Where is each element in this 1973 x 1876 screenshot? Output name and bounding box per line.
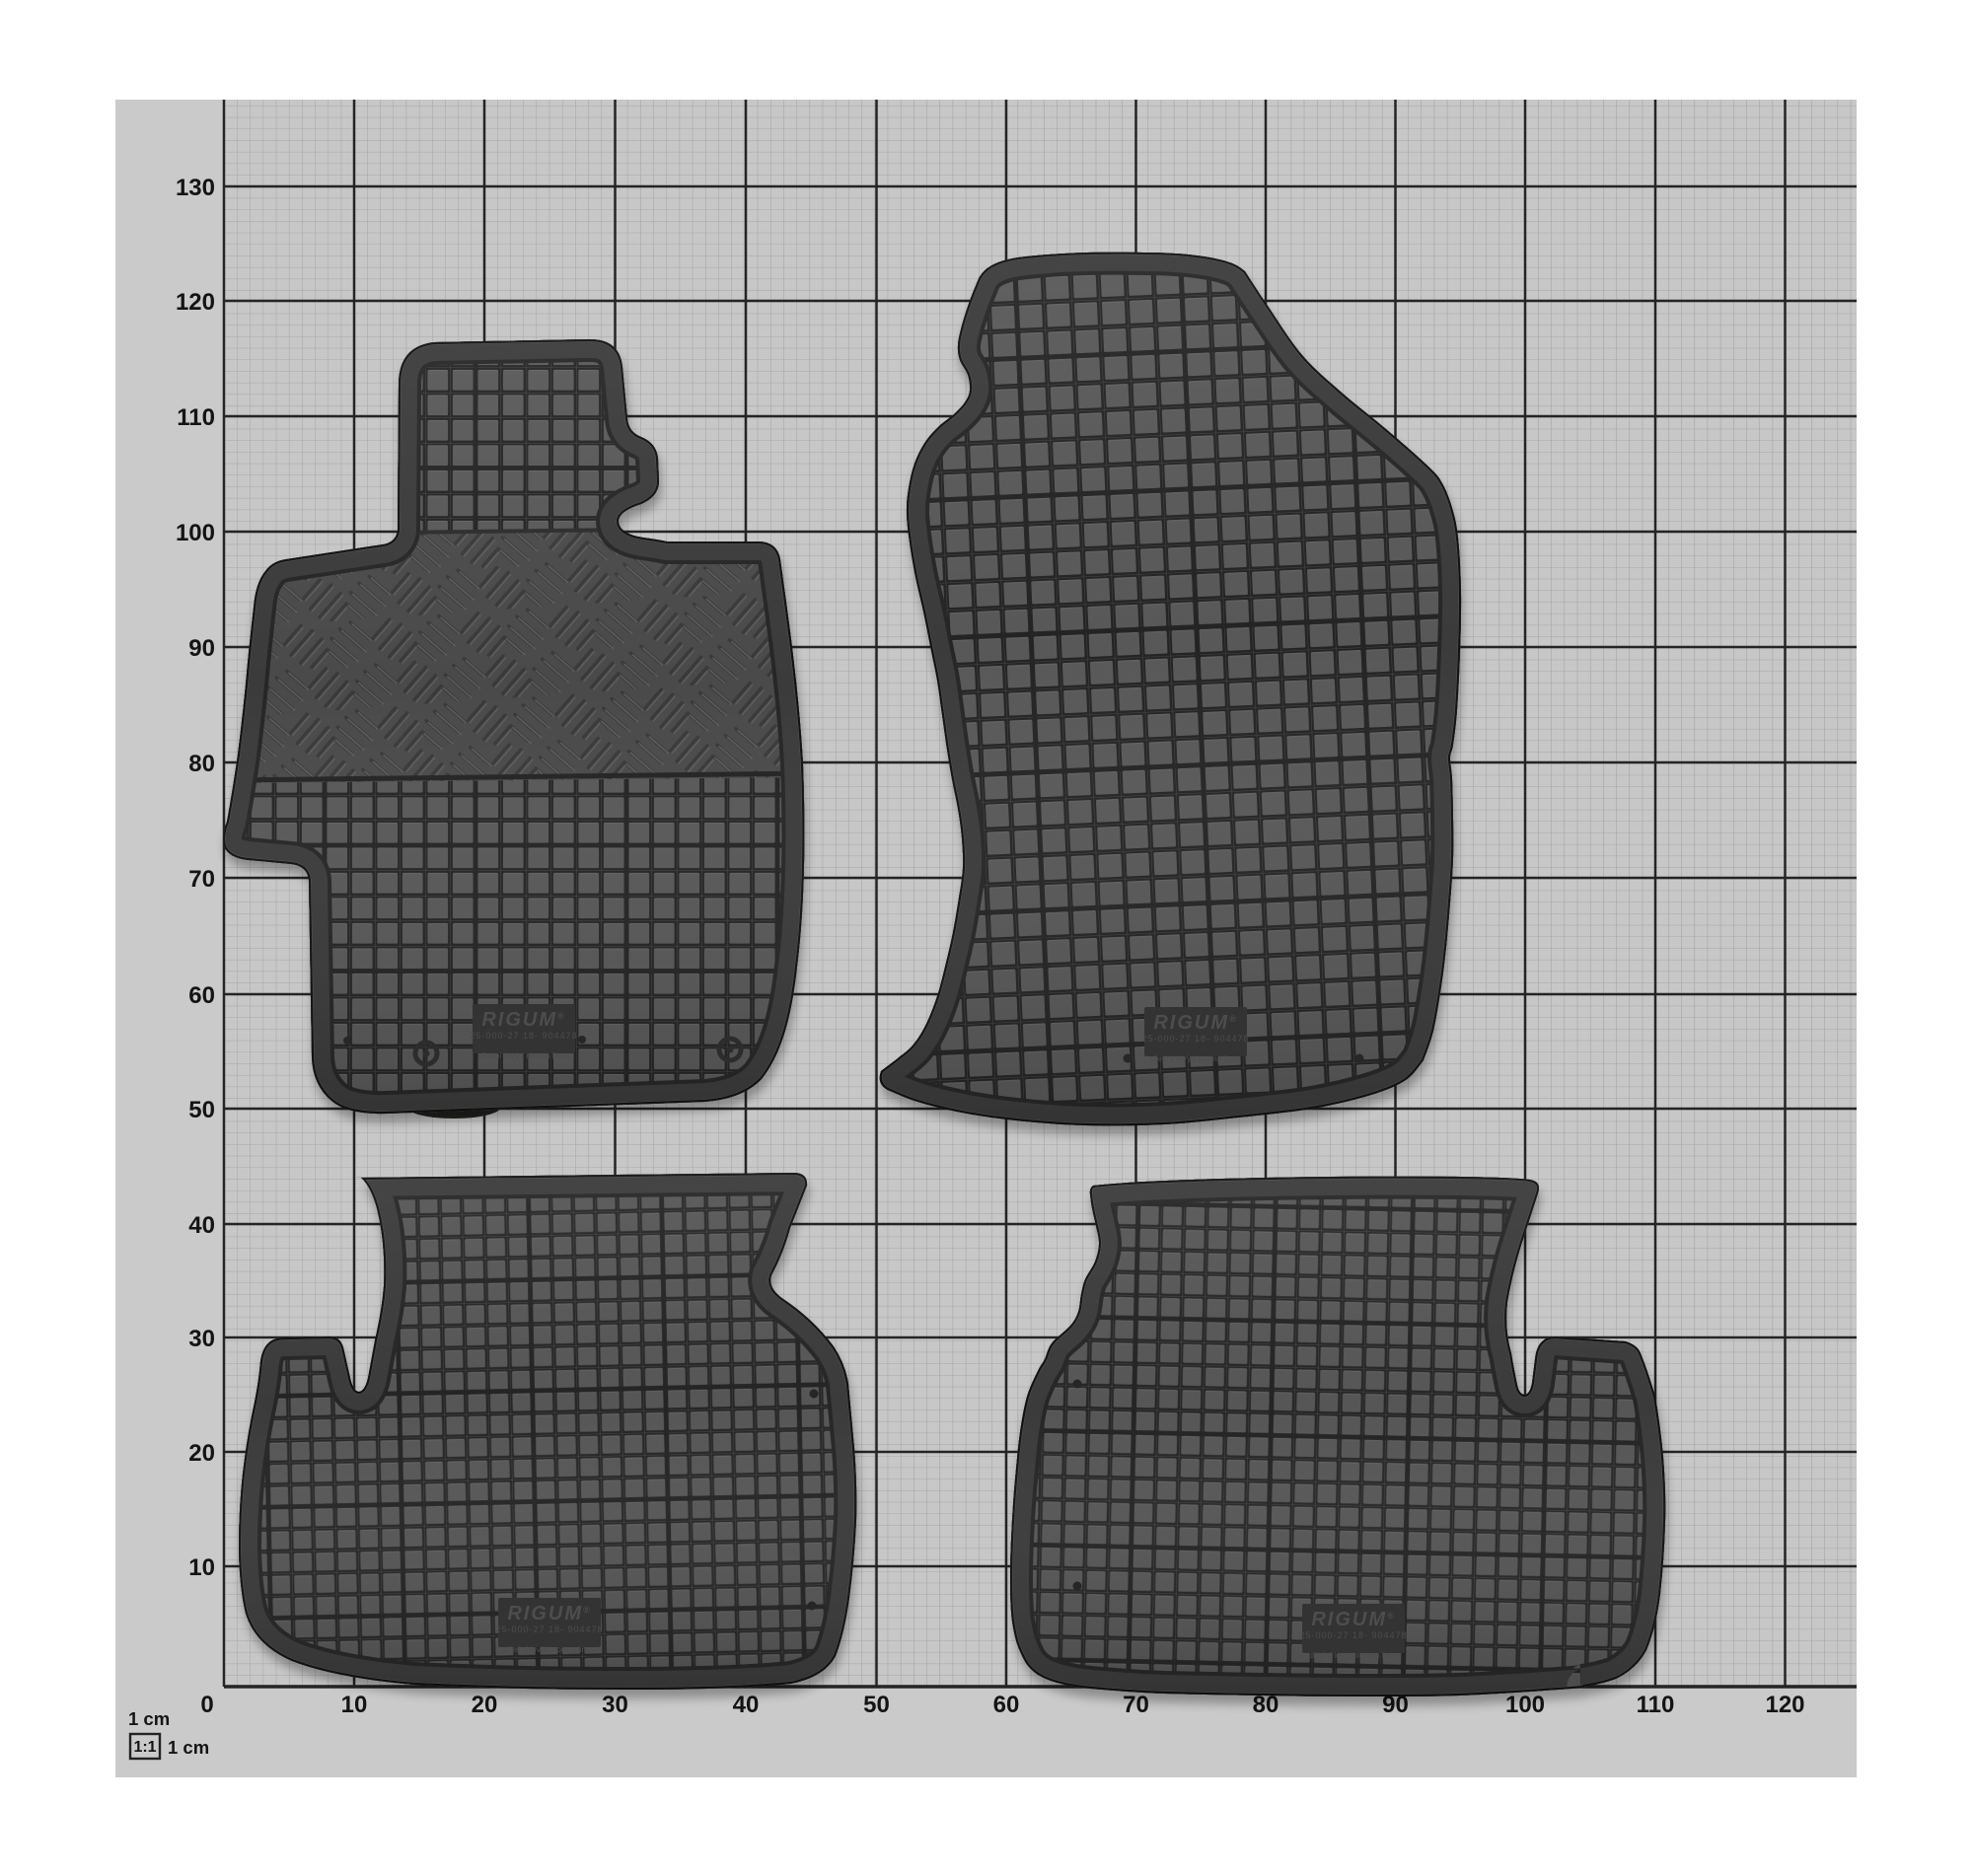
svg-text:110: 110: [177, 404, 215, 431]
svg-text:1 cm: 1 cm: [128, 1708, 170, 1729]
svg-text:0: 0: [200, 1692, 213, 1718]
svg-text:přední levý / norma lines: přední levý / norma lines: [504, 1644, 596, 1654]
svg-text:25-000-27 18- 904478: 25-000-27 18- 904478: [1299, 1630, 1407, 1640]
svg-text:25-000-27 18- 904478: 25-000-27 18- 904478: [1141, 1034, 1249, 1044]
svg-text:1:1: 1:1: [133, 1739, 156, 1756]
svg-text:25-000-27 18- 904478: 25-000-27 18- 904478: [495, 1624, 603, 1634]
svg-text:přední levý / norma lines: přední levý / norma lines: [1308, 1650, 1400, 1660]
svg-text:120: 120: [176, 289, 215, 316]
svg-text:50: 50: [863, 1692, 890, 1718]
svg-text:RIGUM®: RIGUM®: [507, 1603, 591, 1624]
svg-text:50: 50: [188, 1097, 215, 1123]
svg-text:10: 10: [341, 1692, 368, 1718]
svg-text:110: 110: [1637, 1692, 1675, 1718]
svg-text:RIGUM®: RIGUM®: [1311, 1609, 1395, 1630]
svg-text:25-000-27 18- 904478: 25-000-27 18- 904478: [470, 1031, 577, 1041]
svg-text:RIGUM®: RIGUM®: [481, 1009, 565, 1031]
svg-text:přední levý / norma lines: přední levý / norma lines: [478, 1050, 570, 1060]
svg-text:20: 20: [188, 1440, 215, 1467]
svg-text:70: 70: [188, 866, 215, 893]
svg-text:130: 130: [176, 175, 215, 201]
svg-text:100: 100: [176, 520, 215, 546]
svg-text:90: 90: [188, 635, 215, 662]
svg-text:10: 10: [188, 1554, 215, 1581]
svg-text:RIGUM®: RIGUM®: [1153, 1012, 1237, 1034]
svg-text:80: 80: [188, 751, 215, 777]
svg-text:1 cm: 1 cm: [168, 1737, 209, 1758]
svg-text:60: 60: [188, 982, 215, 1009]
svg-text:60: 60: [993, 1692, 1020, 1718]
svg-text:120: 120: [1765, 1692, 1804, 1718]
svg-text:30: 30: [188, 1326, 215, 1352]
svg-text:40: 40: [188, 1212, 215, 1239]
svg-text:přední levý / norma lines: přední levý / norma lines: [1150, 1053, 1242, 1063]
